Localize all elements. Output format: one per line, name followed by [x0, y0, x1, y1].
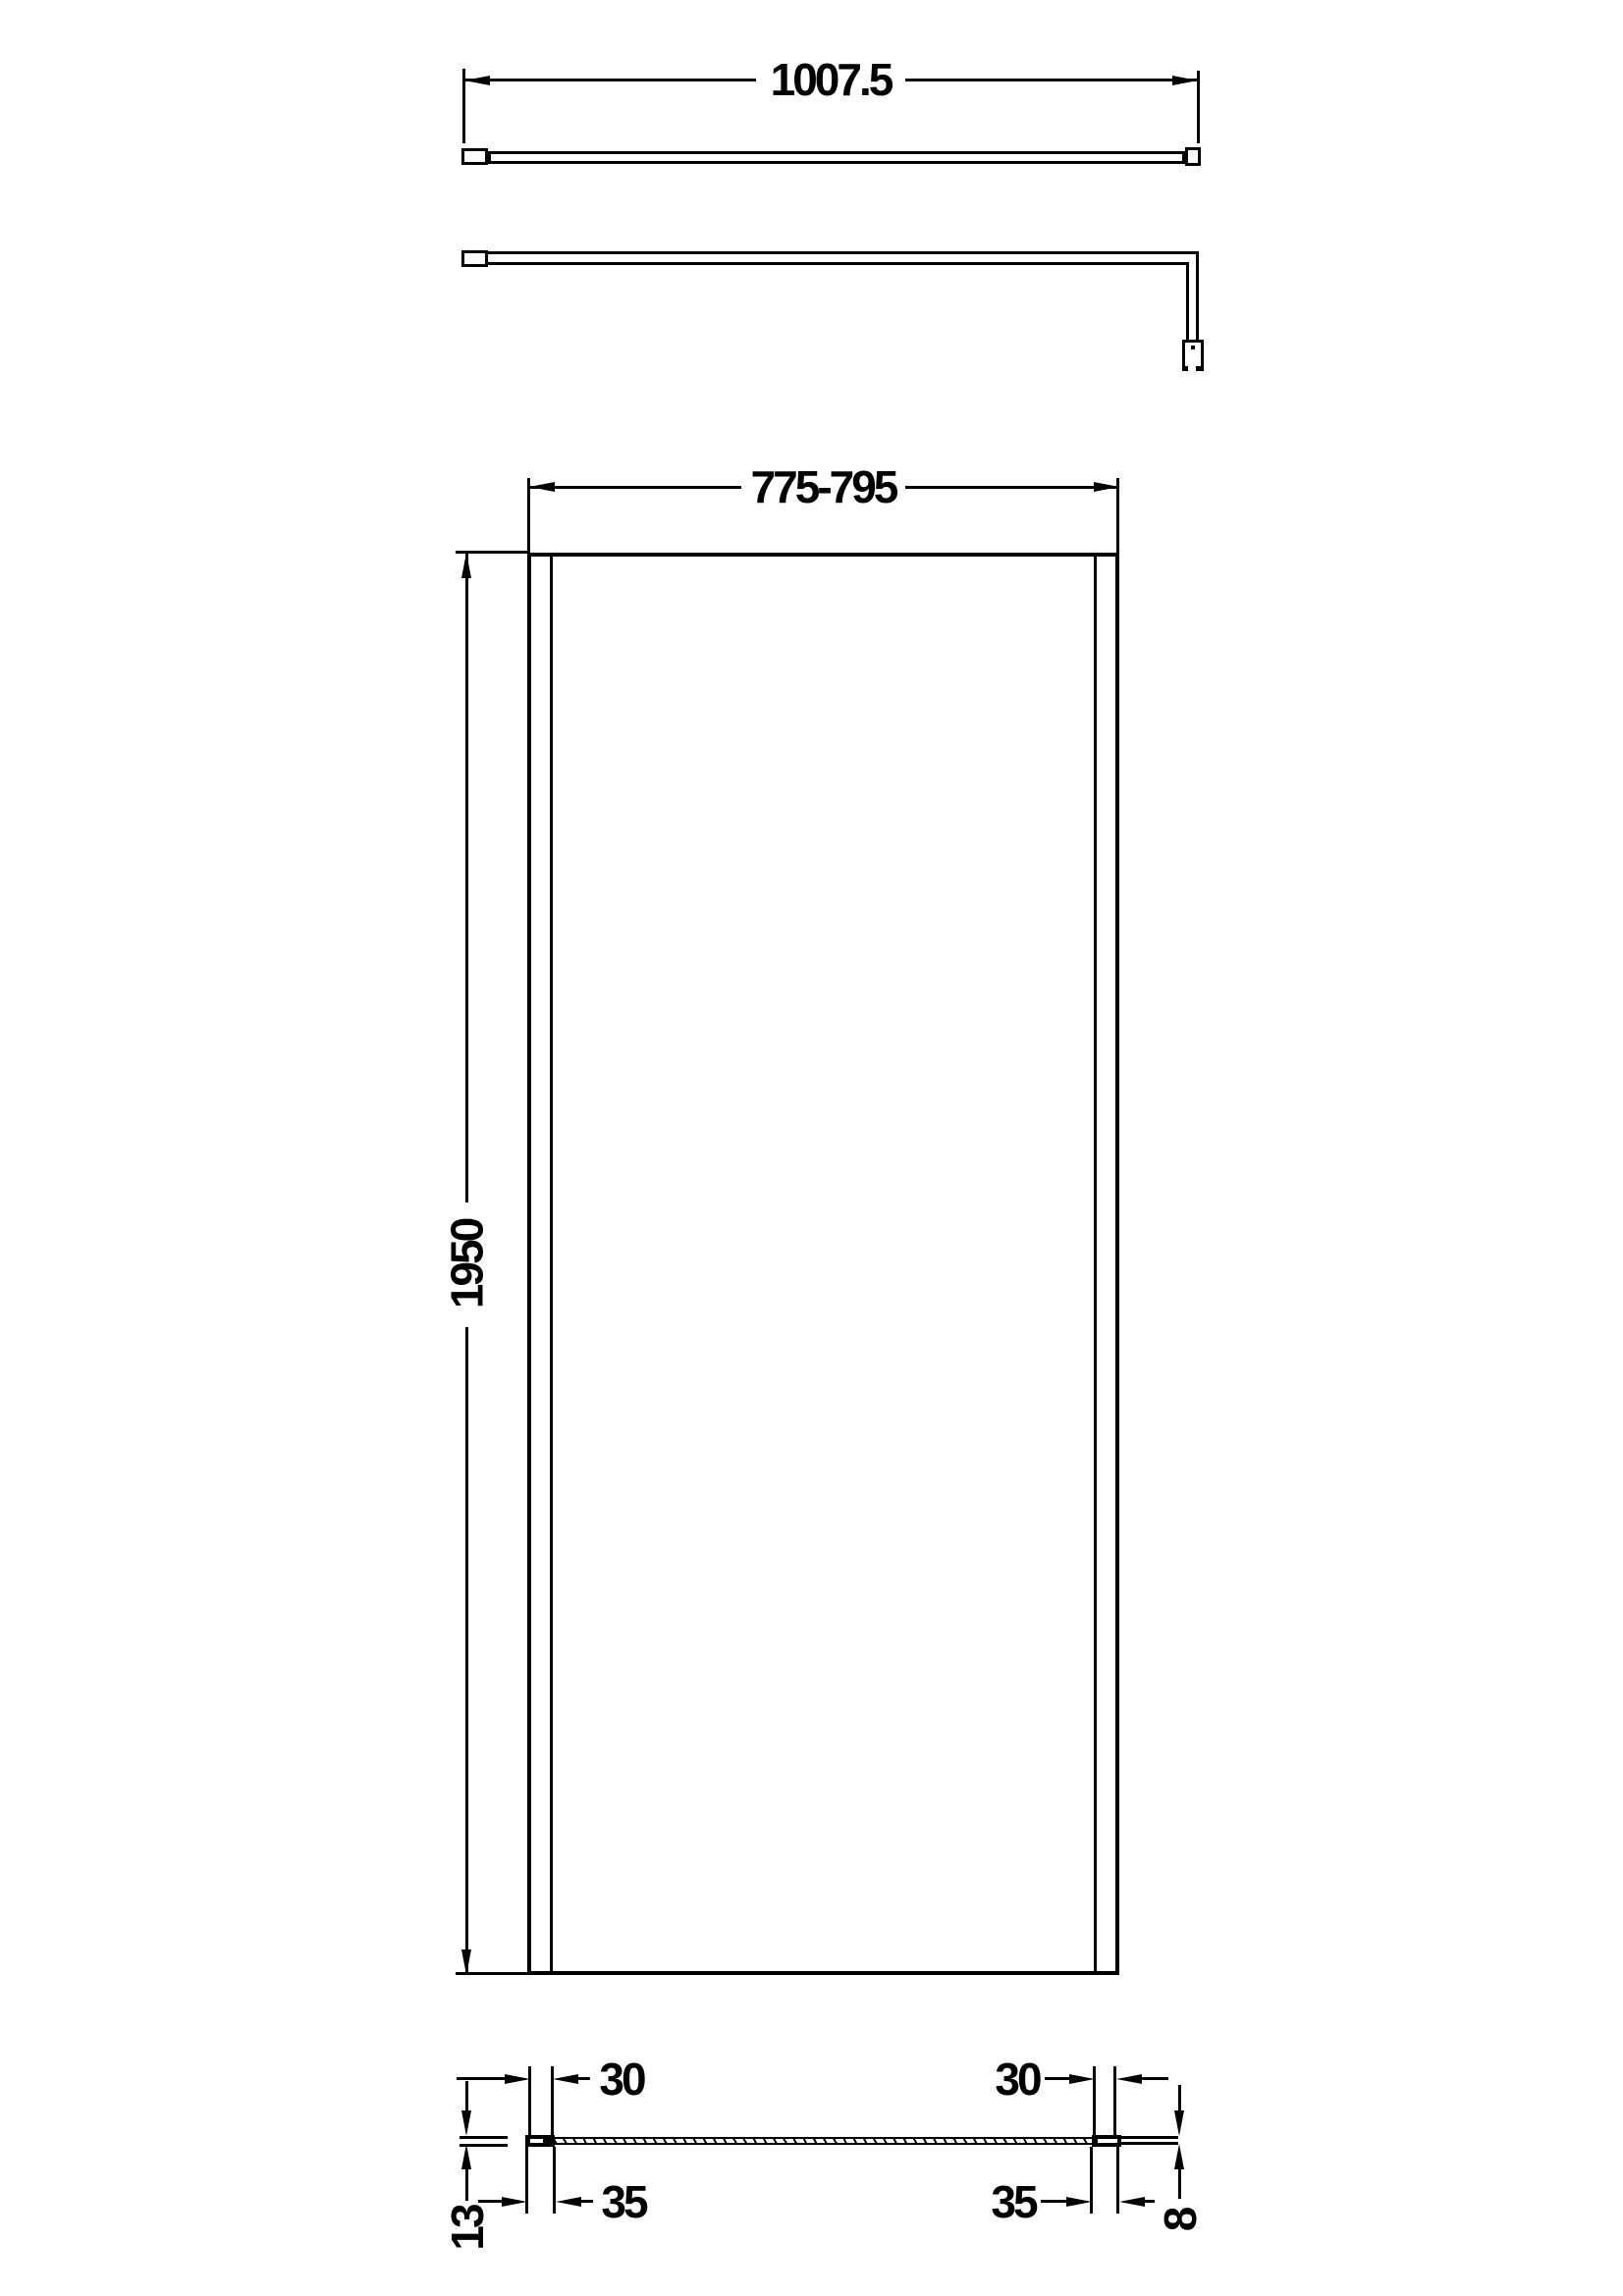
dimension-line: [1142, 2077, 1168, 2080]
extension-line: [1121, 2136, 1178, 2139]
arm-top-line: [488, 251, 1199, 254]
dim-label-right-profile-width: 35: [990, 2180, 1037, 2223]
arrowhead-right: [1069, 2074, 1095, 2084]
arrowhead-right: [502, 2197, 527, 2207]
extension-line: [1121, 2142, 1178, 2145]
arm-bottom-line: [488, 262, 1189, 265]
arrowhead-left: [1116, 2074, 1142, 2084]
arrowhead-left: [529, 482, 555, 492]
extension-line: [528, 2066, 531, 2135]
arrowhead-right: [1172, 76, 1198, 85]
arrowhead-left: [553, 2074, 578, 2084]
left-profile-inner-line: [550, 557, 553, 1971]
arrowhead-right: [1094, 482, 1119, 492]
dim-label-profile-depth: 13: [446, 2194, 489, 2263]
dimension-line: [1045, 2077, 1069, 2080]
extension-line: [1090, 2147, 1093, 2214]
support-arm-bar: [488, 151, 1185, 164]
arrowhead-down: [461, 1949, 471, 1975]
glass-section-hatched: [555, 2137, 1092, 2145]
dim-label-left-profile-width: 35: [599, 2180, 648, 2223]
glass-clamp-end: [1185, 147, 1201, 166]
dimension-line: [465, 2081, 468, 2110]
dimension-line: [581, 2200, 593, 2203]
dimension-line: [1145, 2200, 1155, 2203]
dimension-line: [457, 2077, 506, 2080]
arrowhead-left: [464, 76, 490, 85]
dim-label-right-adjust: 30: [994, 2057, 1041, 2101]
arrowhead-up: [1174, 2144, 1184, 2169]
dimension-line: [905, 79, 1198, 81]
right-profile-inner-line: [1094, 557, 1097, 1971]
arrowhead-left: [556, 2197, 581, 2207]
dim-label-screen-width: 775-795: [741, 465, 905, 508]
dimension-line: [1178, 2169, 1181, 2199]
wall-bracket: [461, 250, 488, 267]
dimension-line: [1178, 2085, 1181, 2112]
wall-bracket-end: [461, 148, 488, 165]
right-profile-slot: [1098, 2139, 1117, 2143]
dimension-line: [905, 486, 1118, 489]
arrowhead-down: [1174, 2110, 1184, 2136]
clamp-screw-dot: [1191, 346, 1195, 349]
arm-drop-inner-line: [1186, 262, 1189, 342]
extension-line: [1093, 2066, 1096, 2135]
left-profile-slot: [530, 2139, 543, 2143]
extension-line: [460, 2136, 508, 2139]
dimension-line: [464, 79, 756, 81]
arrowhead-down: [461, 2110, 471, 2136]
dim-label-glass-thickness: 8: [1159, 2199, 1202, 2242]
clamp-fork-notch: [1188, 359, 1196, 371]
arm-drop-outer-line: [1196, 251, 1199, 342]
dimension-line: [529, 486, 741, 489]
arrowhead-right: [1066, 2197, 1092, 2207]
extension-line: [525, 2147, 528, 2214]
arrowhead-left: [1119, 2197, 1145, 2207]
shower-screen-technical-drawing: 1007.5 775-795 1950: [0, 0, 1623, 2296]
dimension-line: [578, 2077, 590, 2080]
arrowhead-right: [505, 2074, 530, 2084]
dimension-line: [1041, 2200, 1066, 2203]
dimension-line: [465, 553, 468, 1202]
dimension-line: [465, 1327, 468, 1975]
dim-label-arm-length: 1007.5: [756, 58, 905, 101]
dim-label-screen-height: 1950: [446, 1202, 489, 1327]
glass-panel-outline: [527, 553, 1119, 1975]
arrowhead-up: [461, 553, 471, 578]
dim-label-left-adjust: 30: [597, 2057, 646, 2101]
arrowhead-up: [461, 2144, 471, 2169]
